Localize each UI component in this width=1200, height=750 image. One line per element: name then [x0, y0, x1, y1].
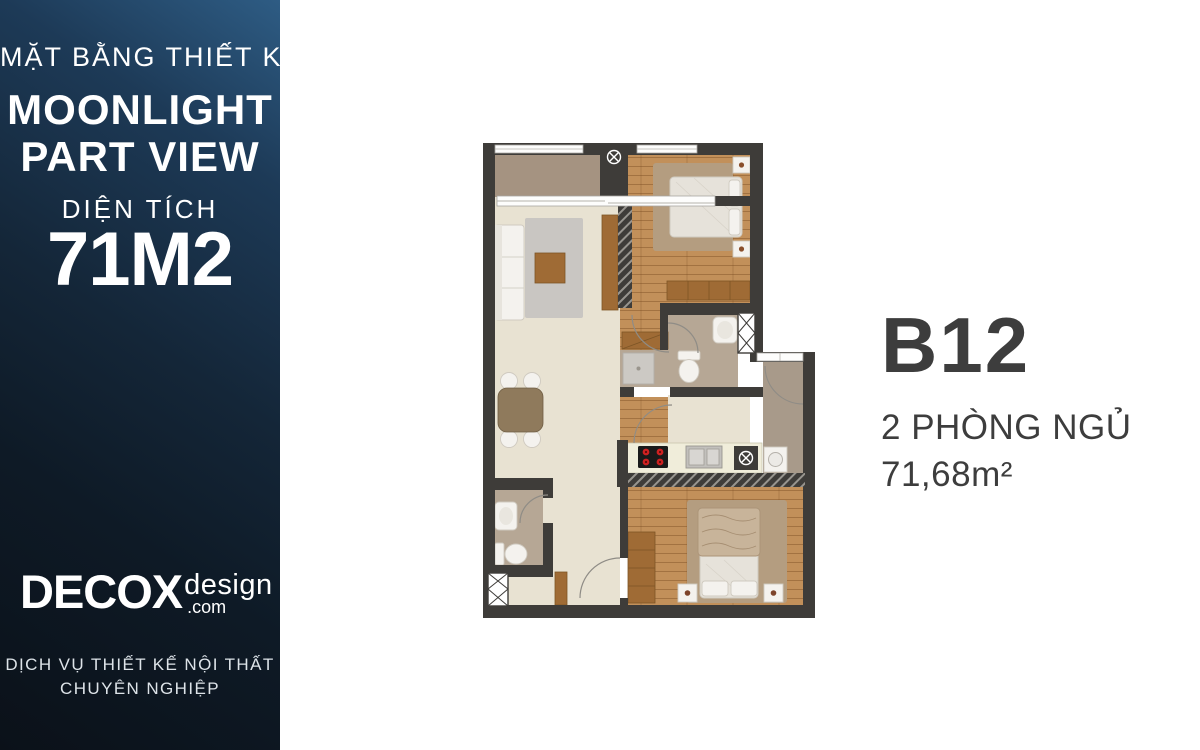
shower [623, 353, 654, 384]
sink-1 [713, 317, 737, 343]
hallway-lower [620, 397, 668, 443]
balcony-sliding-door [497, 196, 715, 206]
logo-design-text: design [184, 572, 272, 598]
washing-machine [764, 447, 787, 472]
slogan-line2: CHUYÊN NGHIỆP [0, 677, 280, 701]
slogan: DỊCH VỤ THIẾT KẾ NỘI THẤT CHUYÊN NGHIỆP [0, 653, 280, 701]
unit-bedrooms: 2 PHÒNG NGỦ [881, 408, 1132, 448]
bed-2 [698, 508, 760, 598]
project-title-line1: MOONLIGHT [0, 86, 280, 133]
unit-area: 71,68m² [881, 455, 1132, 495]
window-balcony-top [495, 145, 583, 153]
area-value: 71M2 [0, 216, 280, 303]
balcony [495, 155, 600, 197]
nightstand [764, 584, 783, 602]
floor-plan [480, 140, 818, 622]
plan-subtitle: MẶT BẰNG THIẾT KẾ [0, 42, 280, 73]
shaft-bathroom1 [738, 313, 755, 353]
shaft-bathroom2 [488, 573, 508, 606]
unit-info: B12 2 PHÒNG NGỦ 71,68m² [881, 306, 1132, 495]
project-title: MOONLIGHT PART VIEW [0, 86, 280, 180]
window-bedroom1-top [637, 145, 697, 153]
logo-brand-text: DECOX [20, 570, 182, 614]
entry-door [757, 353, 803, 361]
project-title-line2: PART VIEW [0, 133, 280, 180]
sink-2 [495, 502, 517, 530]
hatched-wall-kitchen [620, 473, 805, 487]
kitchen [620, 443, 787, 473]
sidebar-panel: MẶT BẰNG THIẾT KẾ MOONLIGHT PART VIEW DI… [0, 0, 280, 750]
sofa [495, 225, 524, 320]
coffee-table [535, 253, 565, 283]
unit-code: B12 [881, 306, 1132, 384]
closet-hatched [618, 198, 632, 308]
bed-1 [670, 177, 742, 237]
slogan-line1: DỊCH VỤ THIẾT KẾ NỘI THẤT [0, 653, 280, 677]
toilet-1 [678, 351, 700, 383]
wardrobe-1 [667, 281, 750, 300]
kitchen-sink [686, 446, 722, 468]
shaft-symbol-kitchen [734, 446, 758, 470]
stove [638, 446, 668, 468]
nightstand [733, 241, 750, 257]
logo-suffix-block: design .com [184, 572, 272, 616]
wardrobe-2 [628, 532, 655, 603]
nightstand [733, 157, 750, 173]
door-leaf [555, 572, 567, 605]
tv-cabinet [602, 215, 618, 310]
kitchen-floor [668, 395, 750, 443]
nightstand [678, 584, 697, 602]
logo-domain-text: .com [184, 598, 272, 616]
toilet-2 [495, 543, 527, 565]
brand-logo: DECOX design .com [20, 570, 273, 616]
